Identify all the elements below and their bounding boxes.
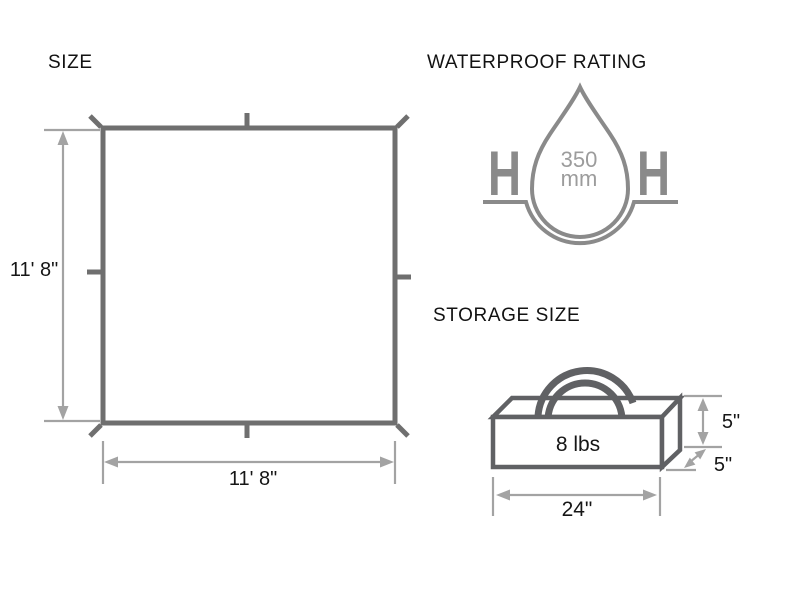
bag-weight-label: 8 lbs [528, 434, 628, 456]
tarp-corner-tab-bottom-right [397, 425, 408, 436]
tarp-corner-tab-bottom-left [90, 425, 101, 436]
bag-top-face [493, 398, 680, 417]
spec-line-art: H H [0, 0, 800, 600]
bag-width-arrowhead-right [643, 490, 657, 501]
size-section-title: SIZE [48, 53, 93, 73]
waterproof-section-title: WATERPROOF RATING [427, 53, 647, 73]
rating-unit: mm [539, 169, 619, 188]
bag-height-arrowhead-down [698, 432, 709, 445]
tarp-corner-tab-top-right [397, 116, 408, 127]
tarp-corner-tab-top-left [90, 116, 101, 127]
height-arrowhead-down [58, 406, 69, 420]
tarp-height-dimension-label: 11' 8" [2, 260, 66, 281]
h-symbol-right: H [637, 139, 670, 209]
storage-section-title: STORAGE SIZE [433, 306, 580, 326]
bag-height-arrowhead-up [698, 398, 709, 411]
width-arrowhead-left [104, 457, 118, 468]
height-arrowhead-up [58, 131, 69, 145]
bag-depth-dimension-label: 5" [705, 455, 741, 476]
tarp-diagram [87, 113, 411, 438]
bag-height-dimension-label: 5" [713, 412, 749, 433]
h-symbol-left: H [488, 139, 521, 209]
bag-width-arrowhead-left [496, 490, 510, 501]
width-arrowhead-right [380, 457, 394, 468]
product-spec-diagram: H H S [0, 0, 800, 600]
tarp-outline [103, 128, 395, 423]
bag-width-dimension-label: 24" [537, 499, 617, 521]
waterproof-rating-value: 350 mm [539, 150, 619, 188]
tarp-width-dimension-label: 11' 8" [193, 469, 313, 490]
